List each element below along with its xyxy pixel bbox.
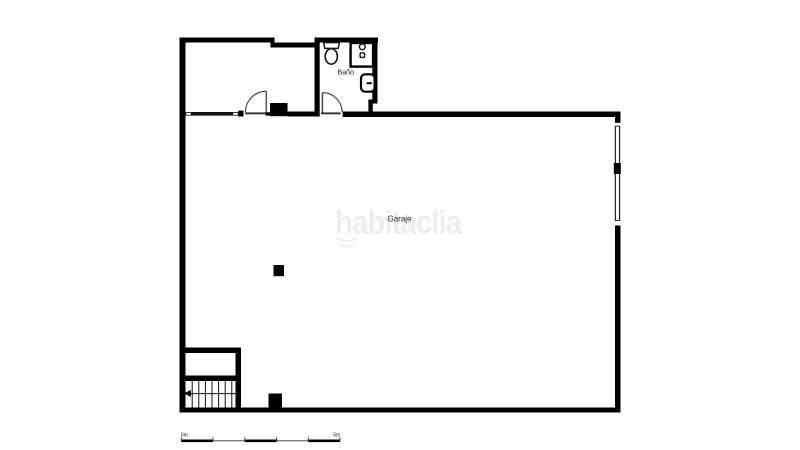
svg-text:Baño: Baño [338,69,355,77]
svg-text:5m: 5m [333,433,340,439]
svg-text:0m: 0m [181,433,188,439]
svg-text:Garaje: Garaje [387,214,412,223]
